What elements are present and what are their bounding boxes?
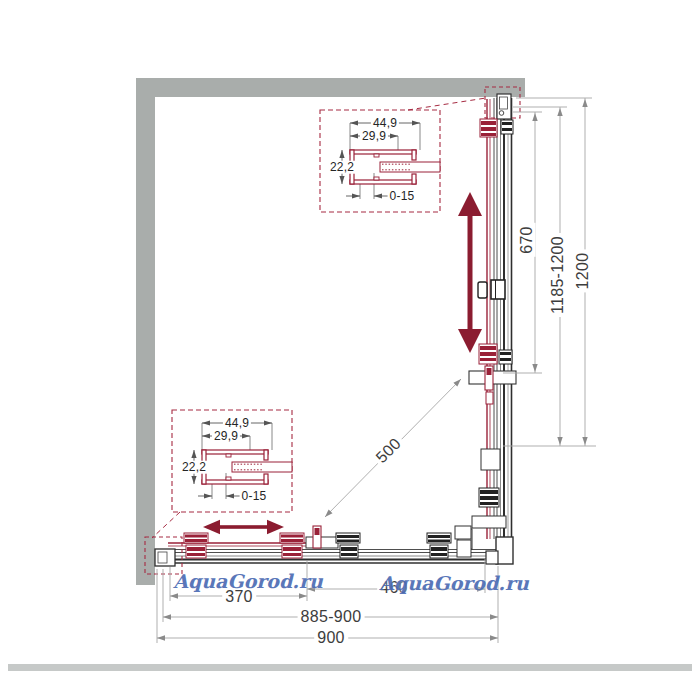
callout-bottom-dim-inner-width: 29,9	[212, 430, 240, 443]
side-rail-assembly	[487, 98, 512, 539]
shower-enclosure-technical-drawing: 44,9 29,9 22,2 0-15 44,9 29,9 22,2 0-15 …	[0, 0, 700, 700]
callout-top-dim-inner-width: 29,9	[360, 130, 388, 143]
front-rail-hardware	[145, 526, 471, 574]
side-door-rollers-handle	[469, 344, 516, 404]
dim-label-1185-1200: 1185-1200	[550, 233, 567, 317]
callout-bottom-dim-outer-width: 44,9	[223, 417, 251, 430]
side-lower-roller	[479, 488, 499, 507]
watermark-left: AquaGorod.ru	[173, 570, 322, 592]
wall-bracket	[481, 449, 500, 470]
callout-bottom-dim-adjustment: 0-15	[240, 490, 269, 503]
slide-direction-arrow-vertical	[458, 192, 482, 353]
dim-label-670: 670	[519, 223, 536, 257]
glass-clamp	[478, 280, 505, 299]
drawing-linework	[0, 0, 700, 700]
callout-bottom-dim-height: 22,2	[180, 461, 208, 474]
dim-label-900: 900	[314, 630, 348, 647]
dim-label-885-900: 885-900	[298, 609, 365, 626]
dim-label-1200: 1200	[575, 250, 592, 293]
callout-top-dim-adjustment: 0-15	[388, 190, 417, 203]
slide-direction-arrow-horizontal	[203, 520, 284, 534]
watermark-right: AquaGorod.ru	[379, 572, 528, 594]
callout-top-dim-outer-width: 44,9	[371, 117, 399, 130]
image-bottom-edge	[8, 664, 692, 671]
callout-top-dim-height: 22,2	[328, 161, 356, 174]
